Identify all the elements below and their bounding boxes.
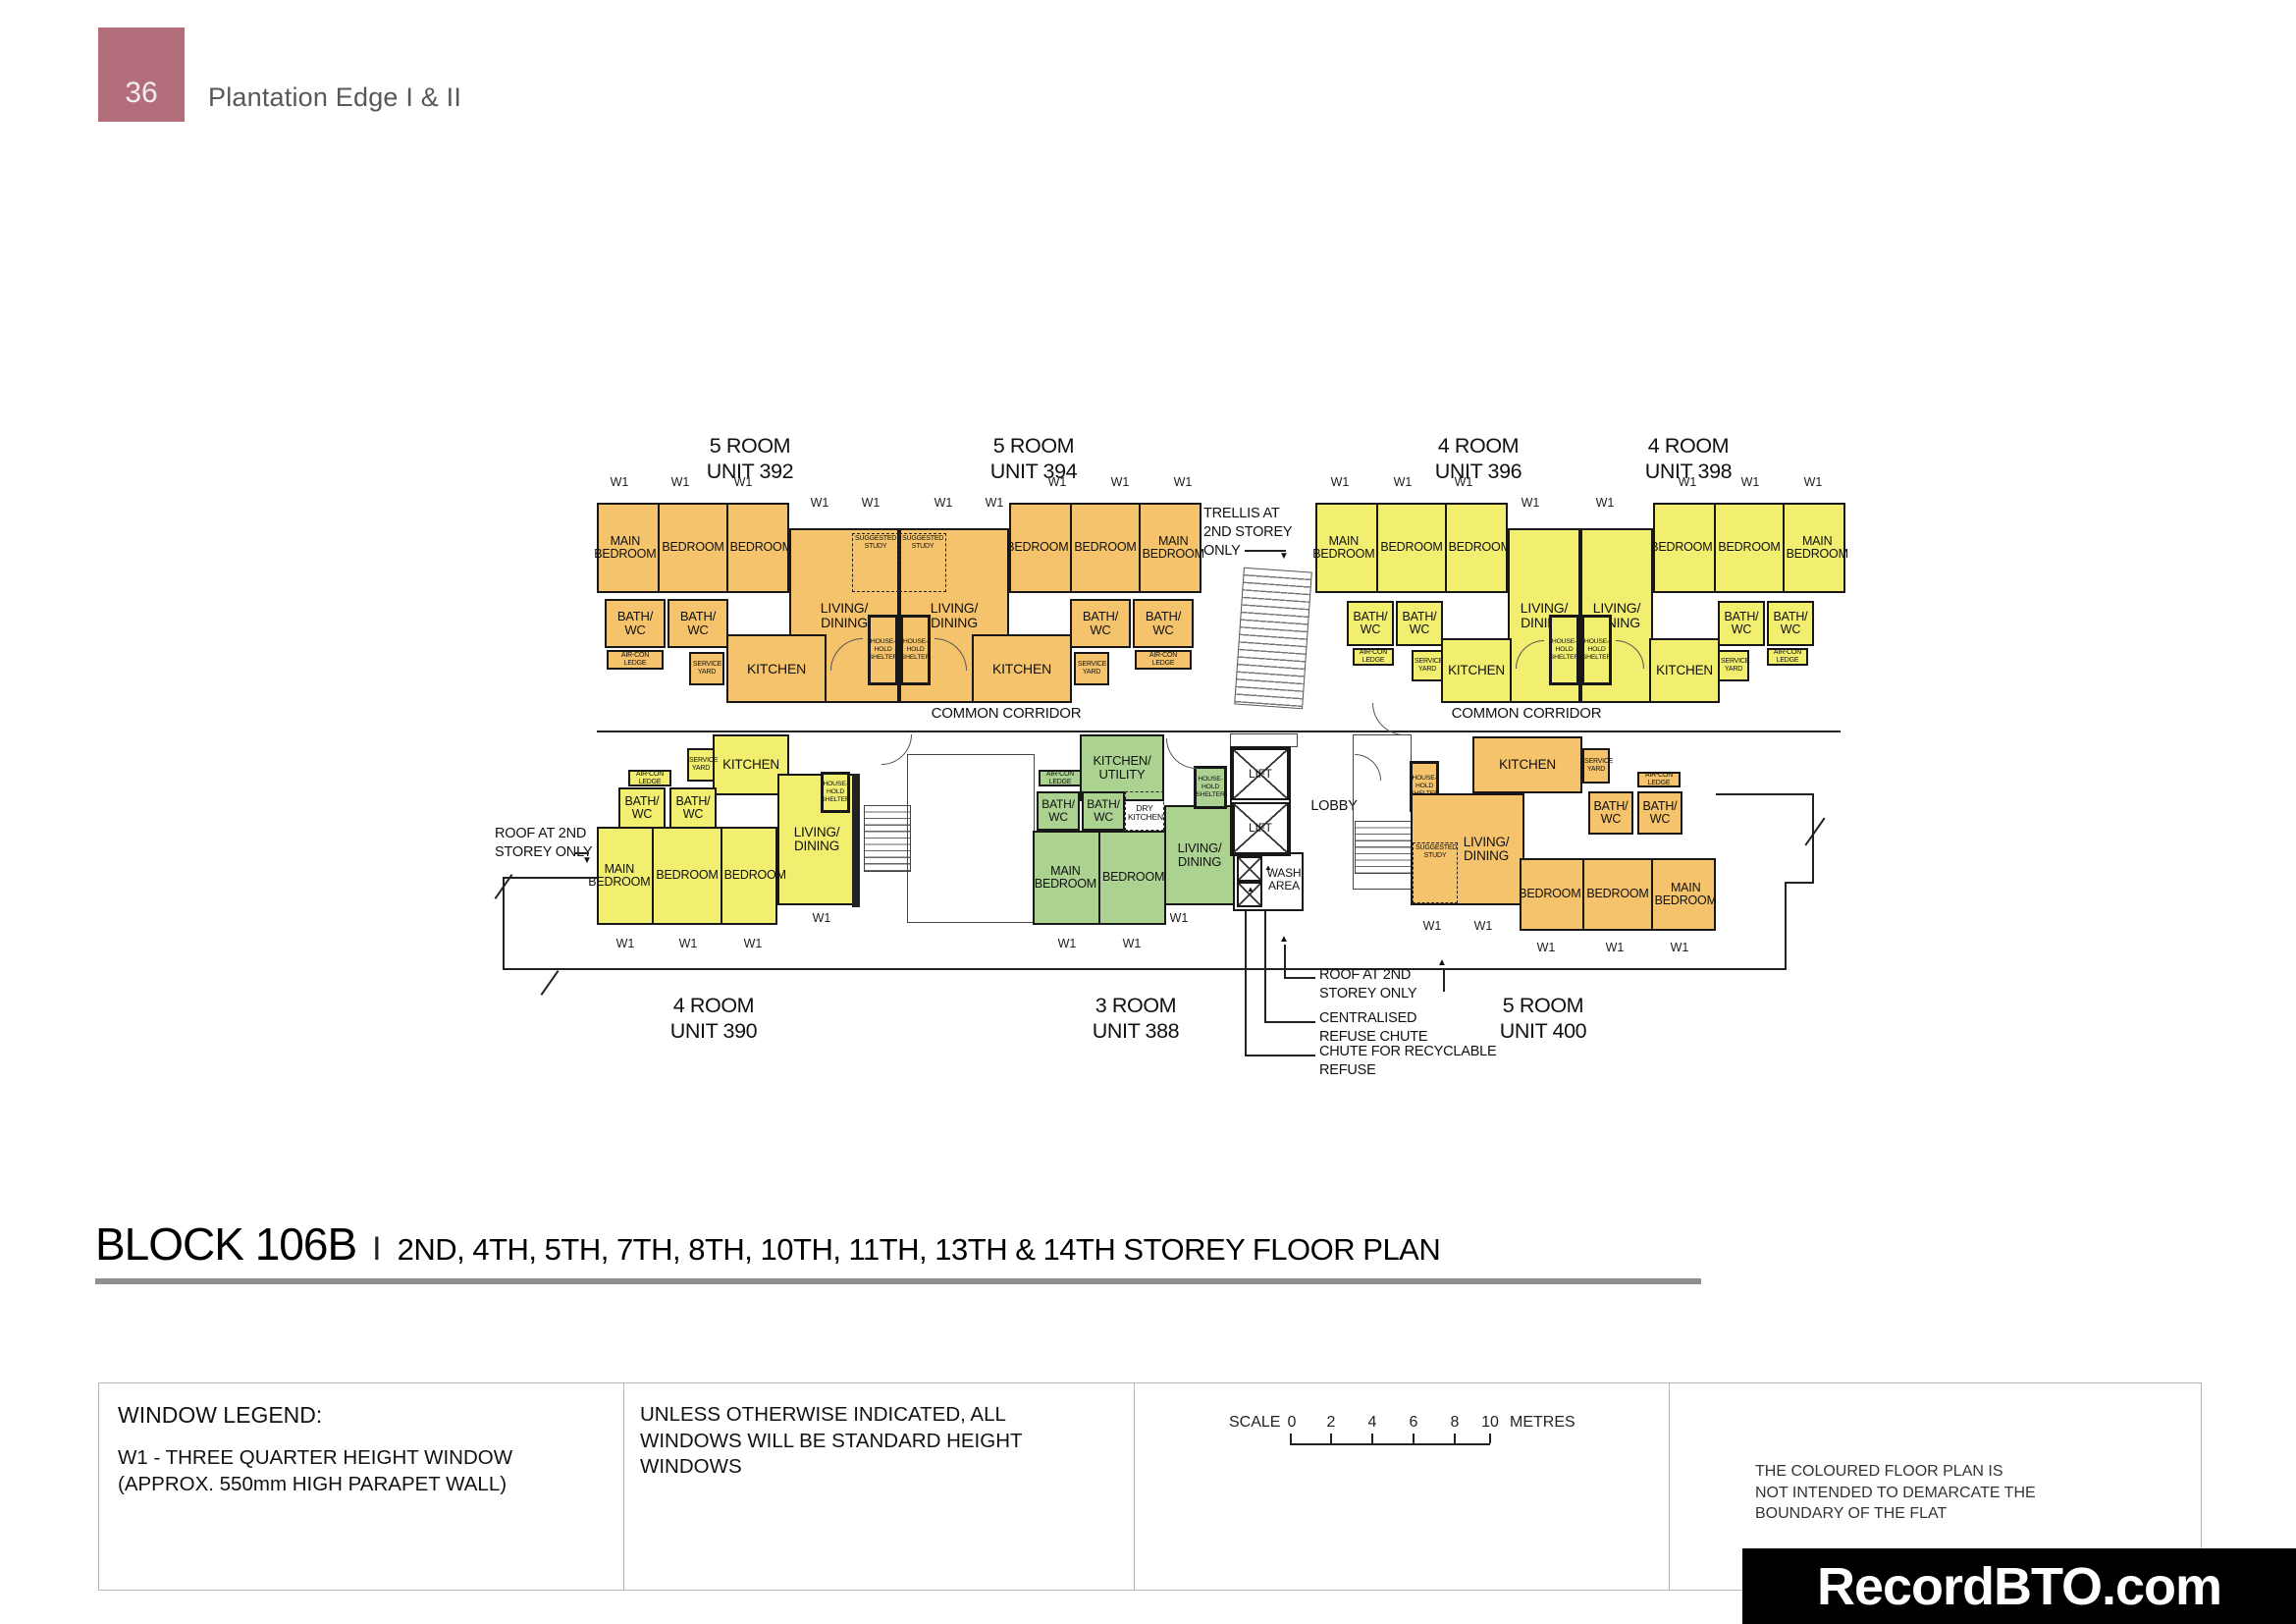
roof-outline (1812, 793, 1814, 884)
roof-break-mark (1804, 818, 1825, 846)
roof-outline (503, 877, 505, 968)
room-aircon-ledge: AIR-CON LEDGE (628, 770, 671, 786)
room-main-bedroom: MAIN BEDROOM (1310, 505, 1376, 591)
unit-title-390: 4 ROOM UNIT 390 (635, 994, 792, 1045)
legend-divider (1134, 1382, 1135, 1591)
roof-outline (1785, 882, 1787, 970)
room-main-bedroom: MAIN BEDROOM (1033, 833, 1098, 923)
block-name: BLOCK 106B (95, 1218, 356, 1271)
room-kitchen: KITCHEN (972, 634, 1072, 703)
room-bath-wc: BATH/ WC (1082, 791, 1125, 831)
leader-line (1264, 911, 1266, 1021)
roof-annotation-left: ROOF AT 2ND STOREY ONLY (495, 825, 613, 862)
w1-window-label: W1 (980, 496, 1009, 510)
legend-divider (1669, 1382, 1670, 1591)
recyclable-refuse-annotation: CHUTE FOR RECYCLABLE REFUSE (1319, 1043, 1516, 1080)
roof-outline (503, 877, 597, 879)
unit-398-type: 4 ROOM (1610, 434, 1767, 460)
lift-label: LIFT (1249, 823, 1272, 835)
storeys-title: 2ND, 4TH, 5TH, 7TH, 8TH, 10TH, 11TH, 13T… (398, 1232, 1441, 1268)
arrow-up-icon: ▲ (1279, 935, 1289, 945)
block-title: BLOCK 106B I 2ND, 4TH, 5TH, 7TH, 8TH, 10… (95, 1218, 1440, 1271)
room-service-yard: SERVICE YARD (687, 748, 715, 782)
room-bedroom: BEDROOM (1376, 505, 1444, 591)
room-kitchen: KITCHEN (726, 634, 827, 703)
room-bedroom: BEDROOM (1445, 505, 1513, 591)
lift-box: LIFT (1232, 802, 1289, 854)
room-bath-wc: BATH/ WC (1767, 601, 1814, 646)
arrow-down-icon: ▼ (1279, 552, 1289, 562)
scale-bar-line (1290, 1443, 1490, 1445)
w1-window-label: W1 (611, 937, 640, 950)
room-aircon-ledge: AIR-CON LEDGE (1637, 772, 1681, 787)
room-kitchen: KITCHEN (1649, 638, 1720, 703)
scale-tick-label: 0 (1282, 1414, 1302, 1432)
w1-window-label: W1 (1468, 919, 1498, 933)
room-bedroom: BEDROOM (1714, 505, 1782, 591)
unit-title-400: 5 ROOM UNIT 400 (1465, 994, 1622, 1045)
room-suggested-study: SUGGESTED STUDY (899, 533, 946, 592)
room-bath-wc: BATH/ WC (669, 787, 717, 829)
watermark-banner: RecordBTO.com (1742, 1548, 2296, 1624)
unit-title-388: 3 ROOM UNIT 388 (1057, 994, 1214, 1045)
room-aircon-ledge: AIR-CON LEDGE (1353, 648, 1394, 666)
scale-bar-tick (1454, 1434, 1456, 1443)
page-number: 36 (125, 77, 157, 110)
staircase (1355, 821, 1412, 874)
leader-line (1245, 911, 1247, 1056)
room-main-bedroom: MAIN BEDROOM (1783, 505, 1850, 591)
w1-window-label: W1 (1417, 919, 1447, 933)
lift-box: LIFT (1232, 748, 1289, 800)
w1-window-label: W1 (666, 475, 695, 489)
w1-window-label: W1 (1516, 496, 1545, 510)
brochure-page: 36 Plantation Edge I & II 5 ROOM UNIT 39… (0, 0, 2296, 1624)
trellis-hatch (1234, 568, 1312, 710)
room-household-shelter: HOUSE- HOLD SHELTER (900, 615, 931, 685)
unit-398-bedroom-wing: BEDROOM BEDROOM MAIN BEDROOM (1653, 503, 1845, 593)
roof-break-mark (541, 970, 560, 996)
unit-title-394: 5 ROOM UNIT 394 (955, 434, 1112, 485)
room-household-shelter: HOUSE- HOLD SHELTER (821, 772, 850, 813)
room-kitchen: KITCHEN (1441, 638, 1512, 703)
unit-390-number: UNIT 390 (635, 1019, 792, 1045)
unit-390-bedroom-wing: MAIN BEDROOM BEDROOM BEDROOM (597, 827, 777, 925)
roof-annotation-right: ROOF AT 2ND STOREY ONLY (1319, 966, 1447, 1003)
room-bedroom: BEDROOM (721, 829, 788, 923)
room-service-yard: SERVICE YARD (1074, 652, 1109, 685)
room-living-dining: LIVING/ DINING (1164, 805, 1235, 905)
room-bath-wc: BATH/ WC (1347, 601, 1394, 646)
unit-396-type: 4 ROOM (1400, 434, 1557, 460)
w1-window-label: W1 (1052, 937, 1082, 950)
room-suggested-study: SUGGESTED STUDY (1413, 842, 1458, 903)
scale-bar-tick (1290, 1434, 1292, 1443)
w1-window-label: W1 (1590, 496, 1620, 510)
w1-window-label: W1 (738, 937, 768, 950)
leader-line (575, 852, 589, 854)
w1-window-label: W1 (1798, 475, 1828, 489)
scale-unit-label: METRES (1510, 1414, 1575, 1432)
room-service-yard: SERVICE YARD (1718, 650, 1749, 681)
room-bath-wc: BATH/ WC (1037, 791, 1080, 831)
w1-window-label: W1 (1325, 475, 1355, 489)
w1-window-label: W1 (1673, 475, 1702, 489)
room-bath-wc: BATH/ WC (1637, 791, 1682, 835)
unit-390-type: 4 ROOM (635, 994, 792, 1019)
room-bedroom: BEDROOM (1070, 505, 1138, 591)
centralised-refuse-annotation: CENTRALISED REFUSE CHUTE (1319, 1009, 1457, 1047)
w1-window-label: W1 (1665, 941, 1694, 954)
room-bath-wc: BATH/ WC (605, 599, 666, 648)
w1-window-label: W1 (1531, 941, 1561, 954)
door-arc (1166, 738, 1197, 769)
room-service-yard: SERVICE YARD (1412, 650, 1443, 681)
unit-394-bedroom-wing: BEDROOM BEDROOM MAIN BEDROOM (1009, 503, 1201, 593)
wash-area-label: WASH AREA (1264, 860, 1304, 899)
leader-line (1284, 945, 1286, 978)
w1-window-label: W1 (807, 911, 836, 925)
arrow-down-icon: ▼ (582, 856, 592, 866)
unit-388-number: UNIT 388 (1057, 1019, 1214, 1045)
roof-outline (1716, 793, 1814, 795)
common-corridor-label: COMMON CORRIDOR (928, 705, 1085, 723)
w1-window-label: W1 (1600, 941, 1629, 954)
unit-394-number: UNIT 394 (955, 460, 1112, 485)
room-bedroom: BEDROOM (1004, 505, 1070, 591)
scale-label: SCALE (1229, 1414, 1280, 1432)
room-kitchen: KITCHEN (1472, 736, 1582, 793)
unit-388-type: 3 ROOM (1057, 994, 1214, 1019)
roof-outline (1785, 882, 1814, 884)
room-service-yard: SERVICE YARD (1582, 748, 1610, 784)
scale-bar-tick (1489, 1434, 1491, 1443)
room-main-bedroom: MAIN BEDROOM (1139, 505, 1206, 591)
room-bedroom: BEDROOM (1098, 833, 1166, 923)
unit-392-type: 5 ROOM (671, 434, 828, 460)
page-title: Plantation Edge I & II (208, 82, 461, 113)
unit-title-396: 4 ROOM UNIT 396 (1400, 434, 1557, 485)
arrow-up-icon: ▲ (1247, 886, 1255, 893)
windows-note: UNLESS OTHERWISE INDICATED, ALL WINDOWS … (640, 1402, 1111, 1481)
page-number-badge: 36 (98, 27, 185, 122)
legend-divider (623, 1382, 624, 1591)
staircase (864, 805, 911, 872)
room-dry-kitchen: DRY KITCHEN (1125, 791, 1164, 831)
scale-bar-tick (1413, 1434, 1415, 1443)
unit-400-number: UNIT 400 (1465, 1019, 1622, 1045)
leader-line (1284, 977, 1315, 979)
room-bath-wc: BATH/ WC (667, 599, 728, 648)
unit-392-bedroom-wing: MAIN BEDROOM BEDROOM BEDROOM (597, 503, 789, 593)
unit-400-type: 5 ROOM (1465, 994, 1622, 1019)
w1-window-label: W1 (728, 475, 758, 489)
room-bedroom: BEDROOM (1648, 505, 1714, 591)
room-bath-wc: BATH/ WC (1718, 601, 1765, 646)
room-suggested-study: SUGGESTED STUDY (852, 533, 899, 592)
scale-bar-tick (1330, 1434, 1332, 1443)
w1-description: W1 - THREE QUARTER HEIGHT WINDOW (APPROX… (118, 1445, 579, 1497)
w1-window-label: W1 (929, 496, 958, 510)
unit-396-number: UNIT 396 (1400, 460, 1557, 485)
leader-line (1443, 968, 1445, 992)
scale-bar-tick (1371, 1434, 1373, 1443)
window-legend-title: WINDOW LEGEND: (118, 1402, 322, 1429)
w1-window-label: W1 (1164, 911, 1194, 925)
room-aircon-ledge: AIR-CON LEDGE (1135, 650, 1192, 670)
w1-window-label: W1 (1168, 475, 1198, 489)
room-bedroom: BEDROOM (1582, 860, 1650, 929)
room-household-shelter: HOUSE- HOLD SHELTER (868, 615, 898, 685)
room-household-shelter: HOUSE- HOLD SHELTER (1581, 615, 1612, 685)
open-void (907, 754, 1035, 923)
scale-tick-label: 4 (1362, 1414, 1382, 1432)
room-main-bedroom: MAIN BEDROOM (592, 505, 658, 591)
lift-label: LIFT (1249, 769, 1272, 781)
room-bedroom: BEDROOM (658, 505, 725, 591)
room-bedroom: BEDROOM (726, 505, 794, 591)
room-aircon-ledge: AIR-CON LEDGE (1767, 648, 1808, 666)
lift-shaft-cap (1230, 733, 1298, 747)
room-main-bedroom: MAIN BEDROOM (1651, 860, 1719, 929)
room-bedroom: BEDROOM (652, 829, 720, 923)
room-bath-wc: BATH/ WC (618, 787, 666, 829)
w1-window-label: W1 (1388, 475, 1417, 489)
corridor-line (597, 731, 1841, 732)
unit-388-bedroom-wing: MAIN BEDROOM BEDROOM (1033, 831, 1166, 925)
room-household-shelter: HOUSE- HOLD SHELTER (1549, 615, 1579, 685)
roof-outline-bottom (503, 968, 1787, 970)
w1-window-label: W1 (1735, 475, 1765, 489)
w1-window-label: W1 (856, 496, 885, 510)
w1-window-label: W1 (1117, 937, 1147, 950)
unit-400-bedroom-wing: BEDROOM BEDROOM MAIN BEDROOM (1520, 858, 1716, 931)
scale-tick-label: 8 (1445, 1414, 1465, 1432)
w1-window-label: W1 (1105, 475, 1135, 489)
room-bath-wc: BATH/ WC (1133, 599, 1194, 648)
arrow-up-icon: ▲ (1437, 958, 1447, 968)
w1-window-label: W1 (805, 496, 834, 510)
room-service-yard: SERVICE YARD (689, 652, 724, 685)
common-corridor-label: COMMON CORRIDOR (1448, 705, 1605, 723)
unit-394-type: 5 ROOM (955, 434, 1112, 460)
leader-line (1264, 1021, 1315, 1023)
room-household-shelter: HOUSE- HOLD SHELTER (1194, 766, 1227, 809)
scale-tick-label: 2 (1321, 1414, 1341, 1432)
leader-line (1245, 1055, 1315, 1056)
unit-396-bedroom-wing: MAIN BEDROOM BEDROOM BEDROOM (1315, 503, 1508, 593)
room-aircon-ledge: AIR-CON LEDGE (1039, 770, 1082, 786)
coloured-plan-disclaimer: THE COLOURED FLOOR PLAN IS NOT INTENDED … (1755, 1461, 2040, 1525)
room-bath-wc: BATH/ WC (1070, 599, 1131, 648)
room-bath-wc: BATH/ WC (1396, 601, 1443, 646)
w1-window-label: W1 (673, 937, 703, 950)
block-title-separator: I (372, 1230, 381, 1269)
title-underline (95, 1278, 1701, 1284)
scale-tick-label: 6 (1404, 1414, 1423, 1432)
watermark-text: RecordBTO.com (1817, 1556, 2221, 1617)
room-aircon-ledge: AIR-CON LEDGE (607, 650, 664, 670)
wall-segment (852, 774, 860, 907)
w1-window-label: W1 (1042, 475, 1072, 489)
w1-window-label: W1 (605, 475, 634, 489)
w1-window-label: W1 (1449, 475, 1478, 489)
room-bedroom: BEDROOM (1517, 860, 1582, 929)
scale-tick-label: 10 (1478, 1414, 1502, 1432)
refuse-chute-box (1237, 856, 1262, 882)
room-bath-wc: BATH/ WC (1588, 791, 1633, 835)
